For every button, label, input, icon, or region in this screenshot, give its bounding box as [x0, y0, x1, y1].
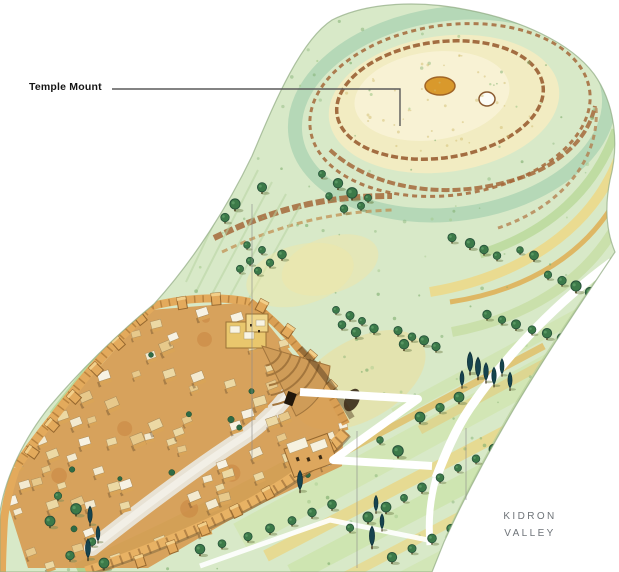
- city-bush: [237, 425, 242, 430]
- city-bush: [71, 526, 77, 532]
- olive-tree: [557, 333, 570, 346]
- city-bush: [186, 412, 191, 417]
- olive-tree: [488, 546, 499, 556]
- olive-tree: [569, 339, 582, 352]
- olive-tree: [517, 485, 527, 495]
- city-bush: [169, 470, 175, 476]
- city-bush: [228, 416, 234, 422]
- threshing-floor-oval: [425, 77, 455, 95]
- wall-tower: [177, 296, 188, 309]
- wall-tower: [211, 293, 221, 306]
- kidron-valley-label: KIDRON VALLEY: [478, 508, 582, 542]
- temple-mount-label: Temple Mount: [29, 81, 102, 93]
- kidron-valley-line2: VALLEY: [478, 525, 582, 542]
- summit-circle-feature: [479, 92, 495, 106]
- city-bush: [69, 467, 75, 473]
- olive-tree: [468, 554, 480, 566]
- olive-tree: [489, 444, 502, 457]
- city-bush: [149, 352, 154, 357]
- cypress-tree: [566, 386, 575, 407]
- city-of-david-illustration: Temple Mount KIDRON VALLEY: [0, 0, 619, 572]
- olive-tree: [465, 515, 476, 526]
- kidron-valley-line1: KIDRON: [478, 508, 582, 525]
- olive-tree: [508, 436, 519, 447]
- olive-tree: [501, 494, 512, 505]
- city-bush: [118, 477, 122, 481]
- cypress-tree: [558, 382, 567, 402]
